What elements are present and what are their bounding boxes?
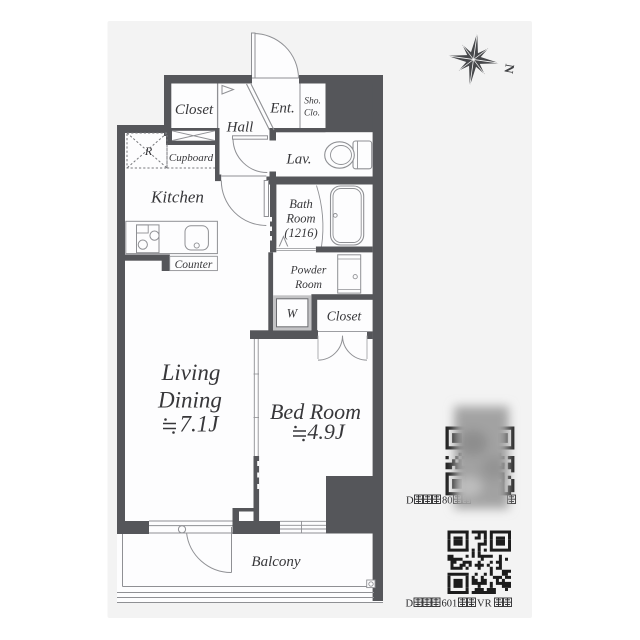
svg-text:R: R (144, 144, 153, 158)
svg-text:Powder: Powder (290, 265, 327, 277)
svg-text:Kitchen: Kitchen (150, 188, 204, 207)
svg-text:Balcony: Balcony (251, 554, 300, 570)
svg-text:D: D (406, 599, 414, 610)
svg-text:Counter: Counter (175, 259, 213, 271)
svg-text:Sho.: Sho. (304, 97, 321, 107)
svg-text:601: 601 (442, 599, 458, 610)
svg-text:Closet: Closet (327, 309, 363, 324)
svg-text:Dining: Dining (157, 388, 222, 413)
svg-text:4.9J: 4.9J (307, 419, 346, 444)
svg-text:VR: VR (477, 599, 492, 610)
svg-text:(1216): (1216) (284, 226, 317, 240)
svg-text:Room: Room (285, 212, 315, 226)
svg-text:Ent.: Ent. (269, 101, 295, 117)
svg-text:Hall: Hall (226, 120, 254, 136)
svg-text:7.1J: 7.1J (180, 412, 221, 437)
svg-text:Closet: Closet (175, 102, 214, 118)
svg-text:Living: Living (161, 360, 221, 385)
svg-text:Lav.: Lav. (285, 152, 311, 168)
svg-text:Room: Room (294, 279, 322, 291)
svg-text:Cupboard: Cupboard (169, 152, 214, 164)
svg-text:Clo.: Clo. (304, 109, 320, 119)
svg-text:W: W (287, 307, 299, 321)
svg-text:Bath: Bath (289, 197, 313, 211)
svg-text:D: D (406, 496, 414, 507)
svg-text:80: 80 (442, 496, 453, 507)
